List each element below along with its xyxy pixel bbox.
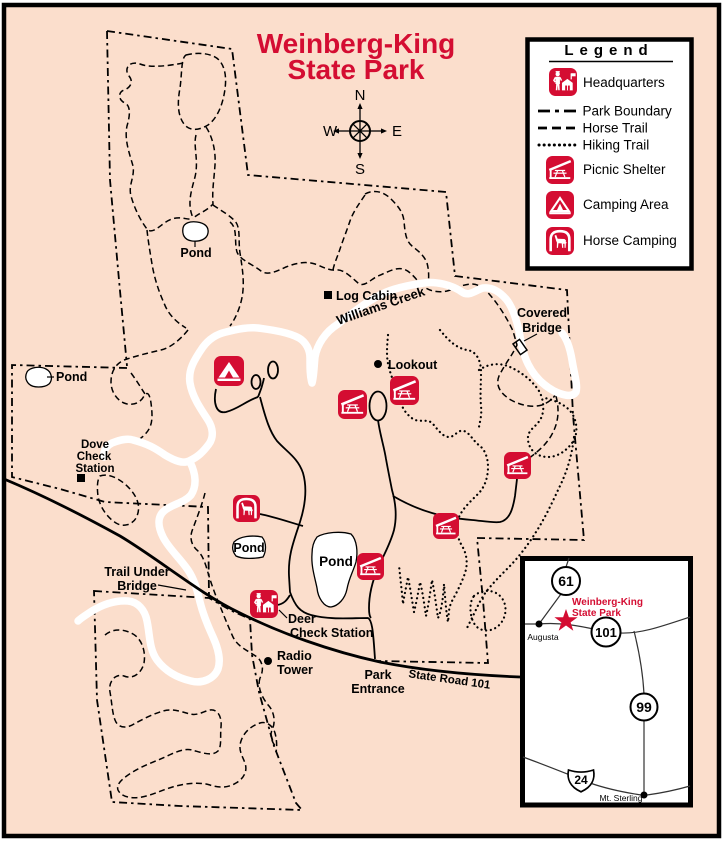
svg-text:Tower: Tower	[277, 663, 313, 677]
svg-text:State Park: State Park	[572, 608, 621, 619]
svg-text:Camping Area: Camping Area	[583, 197, 669, 212]
svg-text:Covered: Covered	[517, 306, 567, 320]
svg-text:W: W	[323, 123, 338, 140]
svg-text:Horse Camping: Horse Camping	[583, 233, 677, 248]
svg-text:Lookout: Lookout	[388, 358, 438, 372]
svg-text:Station: Station	[76, 463, 115, 475]
svg-text:Mt. Sterling: Mt. Sterling	[600, 793, 643, 803]
svg-text:101: 101	[595, 625, 617, 640]
svg-text:Bridge: Bridge	[522, 321, 562, 335]
svg-text:Weinberg-King: Weinberg-King	[572, 597, 643, 608]
svg-text:Radio: Radio	[277, 649, 312, 663]
svg-text:Legend: Legend	[564, 42, 653, 59]
svg-text:Pond: Pond	[56, 370, 87, 384]
svg-text:Trail Under: Trail Under	[104, 565, 169, 579]
svg-text:Picnic Shelter: Picnic Shelter	[583, 162, 666, 177]
svg-text:Pond: Pond	[180, 246, 211, 260]
svg-text:Deer: Deer	[288, 612, 316, 626]
svg-text:Pond: Pond	[319, 554, 353, 569]
svg-text:Park: Park	[364, 668, 391, 682]
svg-text:61: 61	[558, 573, 574, 589]
svg-text:Dove: Dove	[81, 439, 109, 451]
svg-text:State Park: State Park	[288, 54, 425, 85]
svg-text:Hiking Trail: Hiking Trail	[583, 138, 650, 153]
svg-text:Horse Trail: Horse Trail	[583, 121, 648, 136]
svg-text:S: S	[355, 161, 365, 178]
svg-text:Headquarters: Headquarters	[583, 75, 665, 90]
svg-text:Entrance: Entrance	[351, 682, 405, 696]
svg-text:E: E	[392, 123, 402, 140]
svg-text:N: N	[355, 87, 366, 104]
svg-text:Pond: Pond	[233, 541, 264, 555]
svg-text:Check: Check	[77, 451, 112, 463]
svg-text:Park Boundary: Park Boundary	[583, 104, 673, 119]
svg-text:Augusta: Augusta	[527, 632, 558, 642]
svg-text:24: 24	[574, 773, 588, 787]
svg-text:Bridge: Bridge	[117, 579, 157, 593]
svg-text:Check Station: Check Station	[290, 626, 373, 640]
svg-text:99: 99	[636, 699, 652, 715]
